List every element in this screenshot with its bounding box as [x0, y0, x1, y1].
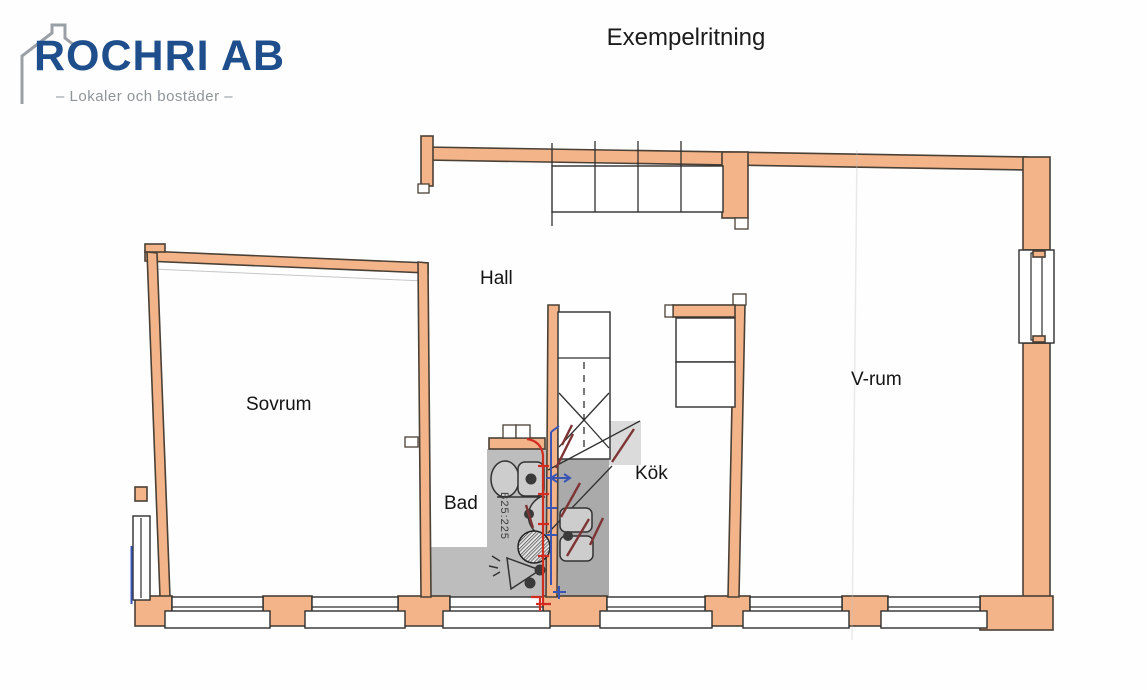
room-label-vrum: V-rum — [851, 369, 902, 391]
scan-fold-line — [852, 150, 857, 640]
sink-drain-dot — [563, 531, 573, 541]
wall-segment — [421, 136, 433, 186]
window-sill — [443, 611, 550, 628]
window-sill — [1033, 336, 1045, 342]
window-sill — [1033, 251, 1045, 257]
window — [1019, 250, 1054, 343]
room-label-hall: Hall — [480, 268, 513, 290]
duct-shaft — [503, 425, 516, 438]
window-sill — [165, 611, 270, 628]
wall-cap — [733, 294, 746, 305]
cabinet — [676, 362, 735, 407]
drain-dot — [525, 578, 536, 589]
room-label-sovrum: Sovrum — [246, 394, 311, 416]
wall-segment — [418, 262, 431, 597]
wall-segment — [145, 251, 428, 273]
cabinet — [676, 318, 735, 362]
pipe-annotation: B25:225 — [498, 492, 510, 540]
floor-plan-page: ROCHRI AB – Lokaler och bostäder – Exemp… — [0, 0, 1147, 690]
toilet-drain-dot — [526, 474, 537, 485]
room-label-bad: Bad — [444, 493, 478, 515]
wall-cap — [665, 305, 673, 317]
duct-shaft — [516, 425, 530, 438]
wall-pillar — [722, 152, 748, 218]
room-label-kok: Kök — [635, 463, 668, 485]
floor-drain — [518, 531, 550, 563]
wall-segment — [135, 487, 147, 501]
wall-segment — [145, 244, 165, 252]
wall-segment — [543, 596, 607, 626]
wall-cap — [405, 437, 418, 447]
wall-segment — [1023, 157, 1050, 250]
floor-plan-drawing — [0, 0, 1147, 690]
window-sill — [305, 611, 405, 628]
kitchen-cabinets — [548, 312, 735, 561]
window-sill — [600, 611, 712, 628]
wall-segment — [673, 305, 735, 317]
window-sill — [743, 611, 849, 628]
wall-cap — [418, 184, 429, 193]
wall-segment — [980, 596, 1053, 630]
wall-cap — [735, 218, 748, 229]
bathroom-tiles — [430, 547, 488, 597]
wall-segment — [398, 596, 450, 626]
wall-segment — [1023, 343, 1050, 598]
window-sill — [881, 611, 987, 628]
